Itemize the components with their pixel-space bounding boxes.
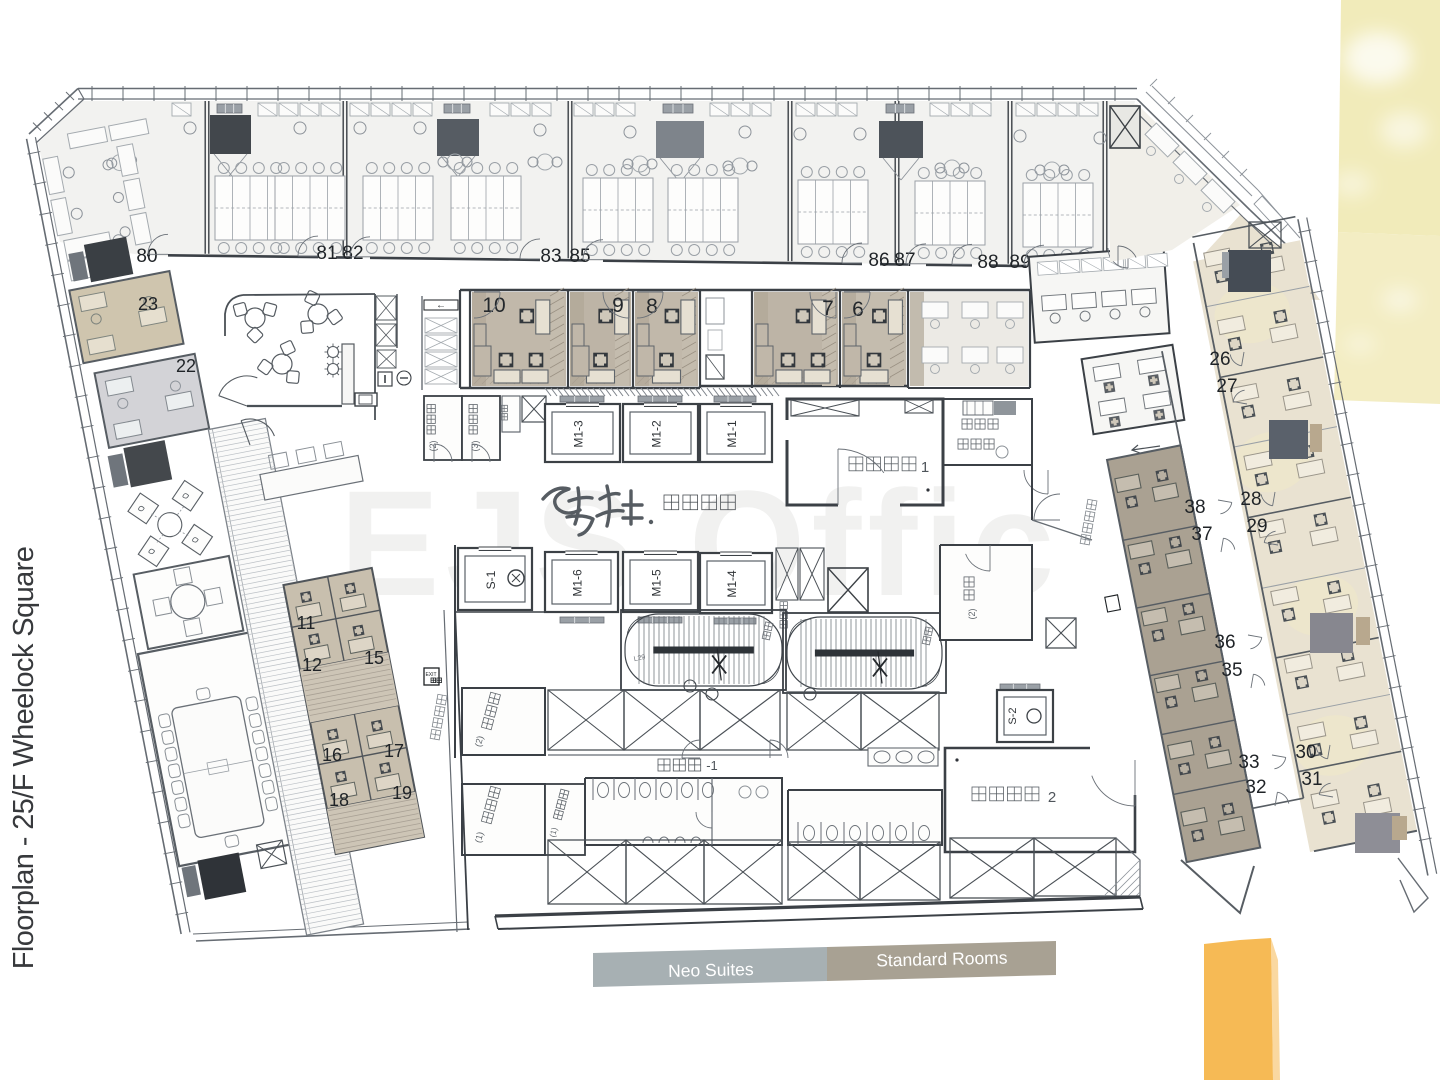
svg-text:37: 37 [1191,524,1212,545]
svg-text:27: 27 [1216,376,1237,397]
svg-text:83: 83 [540,246,561,267]
svg-text:M1-4: M1-4 [725,570,739,598]
svg-text:(3): (3) [470,440,480,451]
svg-text:Neo Suites: Neo Suites [668,959,754,981]
svg-text:30: 30 [1295,742,1316,763]
svg-text:12: 12 [302,655,322,675]
svg-text:87: 87 [894,250,915,271]
svg-text:89: 89 [1009,252,1030,273]
svg-text:2: 2 [1048,789,1056,806]
svg-text:26: 26 [1209,349,1230,370]
svg-text:18: 18 [329,790,349,810]
svg-text:22: 22 [176,356,196,376]
svg-text:38: 38 [1184,497,1205,518]
svg-text:-1: -1 [706,758,718,773]
svg-text:M1-2: M1-2 [650,420,664,448]
svg-text:19: 19 [392,783,412,803]
svg-text:M1-5: M1-5 [650,569,664,597]
svg-text:Standard Rooms: Standard Rooms [876,948,1008,971]
svg-text:8: 8 [646,295,658,318]
svg-text:88: 88 [977,252,998,273]
svg-text:17: 17 [384,741,404,761]
svg-text:S-1: S-1 [484,570,498,589]
svg-text:(2): (2) [967,608,977,619]
svg-text:85: 85 [569,246,590,267]
svg-text:M1-1: M1-1 [725,420,739,448]
svg-text:33: 33 [1238,752,1259,773]
svg-text:M1-3: M1-3 [572,420,586,448]
svg-text:23: 23 [138,294,158,314]
svg-text:36: 36 [1214,632,1235,653]
svg-text:15: 15 [364,648,384,668]
svg-text:Floorplan - 25/F Wheelock Squa: Floorplan - 25/F Wheelock Square [8,547,40,969]
svg-text:S-2: S-2 [1007,707,1019,724]
svg-text:16: 16 [322,745,342,765]
svg-text:31: 31 [1301,769,1322,790]
svg-text:6: 6 [852,298,864,321]
svg-text:35: 35 [1221,660,1242,681]
svg-text:M1-6: M1-6 [571,569,585,597]
svg-text:EXIT: EXIT [425,672,436,678]
svg-text:80: 80 [136,246,157,267]
svg-text:81: 81 [316,243,337,264]
svg-text:10: 10 [482,294,505,317]
svg-text:28: 28 [1240,489,1261,510]
svg-text:86: 86 [868,250,889,271]
svg-text:29: 29 [1246,516,1267,537]
svg-text:11: 11 [297,613,316,633]
svg-text:1: 1 [921,459,929,476]
svg-text:←: ← [436,300,446,311]
svg-text:(2): (2) [428,440,438,451]
svg-text:32: 32 [1245,777,1266,798]
